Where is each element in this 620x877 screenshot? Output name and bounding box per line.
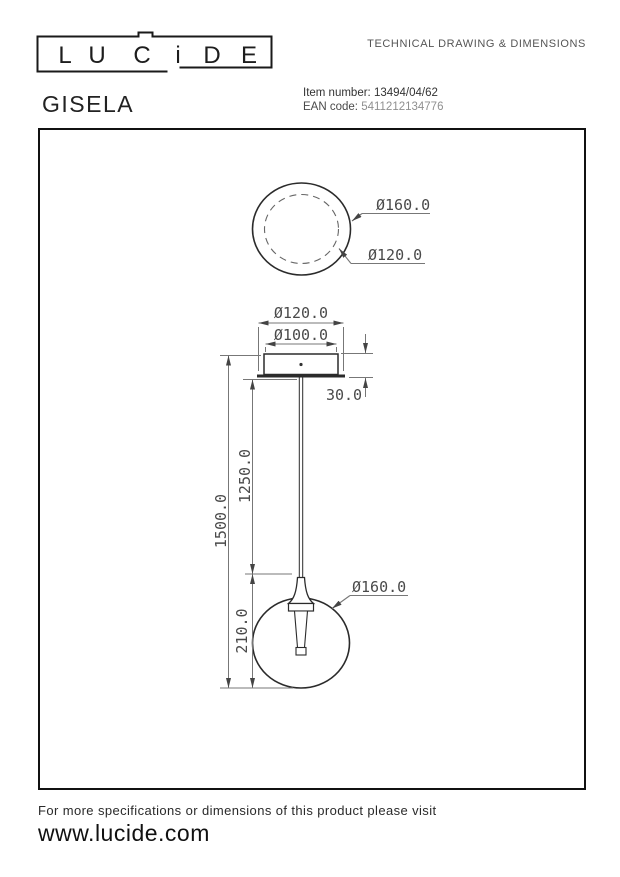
logo-letter: L xyxy=(58,42,71,69)
leader-line xyxy=(332,596,350,609)
ean-value: 5411212134776 xyxy=(361,101,443,113)
drawing-frame xyxy=(39,129,585,789)
item-info: Item number: 13494/04/62 EAN code: 54112… xyxy=(303,86,443,114)
canopy-base-plate xyxy=(257,375,345,378)
dim-canopy-diameter: Ø120.0 xyxy=(274,304,328,322)
socket-collar xyxy=(289,604,314,612)
logo-letter: i xyxy=(175,42,180,69)
item-number-value: 13494/04/62 xyxy=(374,87,438,99)
dim-cord-length: 1250.0 xyxy=(236,449,254,503)
dim-canopy-inner-diameter: Ø100.0 xyxy=(274,326,328,344)
top-view: Ø160.0 Ø120.0 xyxy=(253,183,431,275)
lucide-logo: L U C i D E xyxy=(33,28,278,78)
doc-type-label: TECHNICAL DRAWING & DIMENSIONS xyxy=(367,38,586,50)
item-number-label: Item number: xyxy=(303,87,371,99)
dim-shade-diameter: Ø160.0 xyxy=(352,578,406,596)
logo-letter: D xyxy=(203,42,220,69)
logo-box-outline xyxy=(38,33,272,72)
technical-drawing: Ø160.0 Ø120.0 Ø120.0 Ø100.0 xyxy=(38,128,586,790)
dim-top-outer-diameter: Ø160.0 xyxy=(376,196,430,214)
dim-total-height: 1500.0 xyxy=(212,494,230,548)
website-link[interactable]: www.lucide.com xyxy=(38,820,210,847)
inner-tube-tip xyxy=(296,648,306,656)
top-view-outer-circle xyxy=(253,183,351,275)
spec-sheet: L U C i D E TECHNICAL DRAWING & DIMENSIO… xyxy=(0,0,620,877)
item-number-row: Item number: 13494/04/62 xyxy=(303,86,443,100)
ean-row: EAN code: 5411212134776 xyxy=(303,100,443,114)
canopy-screw xyxy=(299,363,302,366)
top-view-inner-circle xyxy=(265,195,339,264)
dim-canopy-height: 30.0 xyxy=(326,386,362,404)
ean-label: EAN code: xyxy=(303,101,358,113)
product-name: GISELA xyxy=(42,91,134,118)
dim-top-inner-diameter: Ø120.0 xyxy=(368,246,422,264)
logo-letter: U xyxy=(88,42,105,69)
socket-flare xyxy=(289,578,314,604)
logo-letter: C xyxy=(133,42,150,69)
leader-line xyxy=(352,214,362,222)
front-view: Ø120.0 Ø100.0 30.0 xyxy=(212,304,408,688)
footer-note: For more specifications or dimensions of… xyxy=(38,803,437,818)
logo-letter: E xyxy=(241,42,257,69)
dim-shade-height: 210.0 xyxy=(233,608,251,653)
